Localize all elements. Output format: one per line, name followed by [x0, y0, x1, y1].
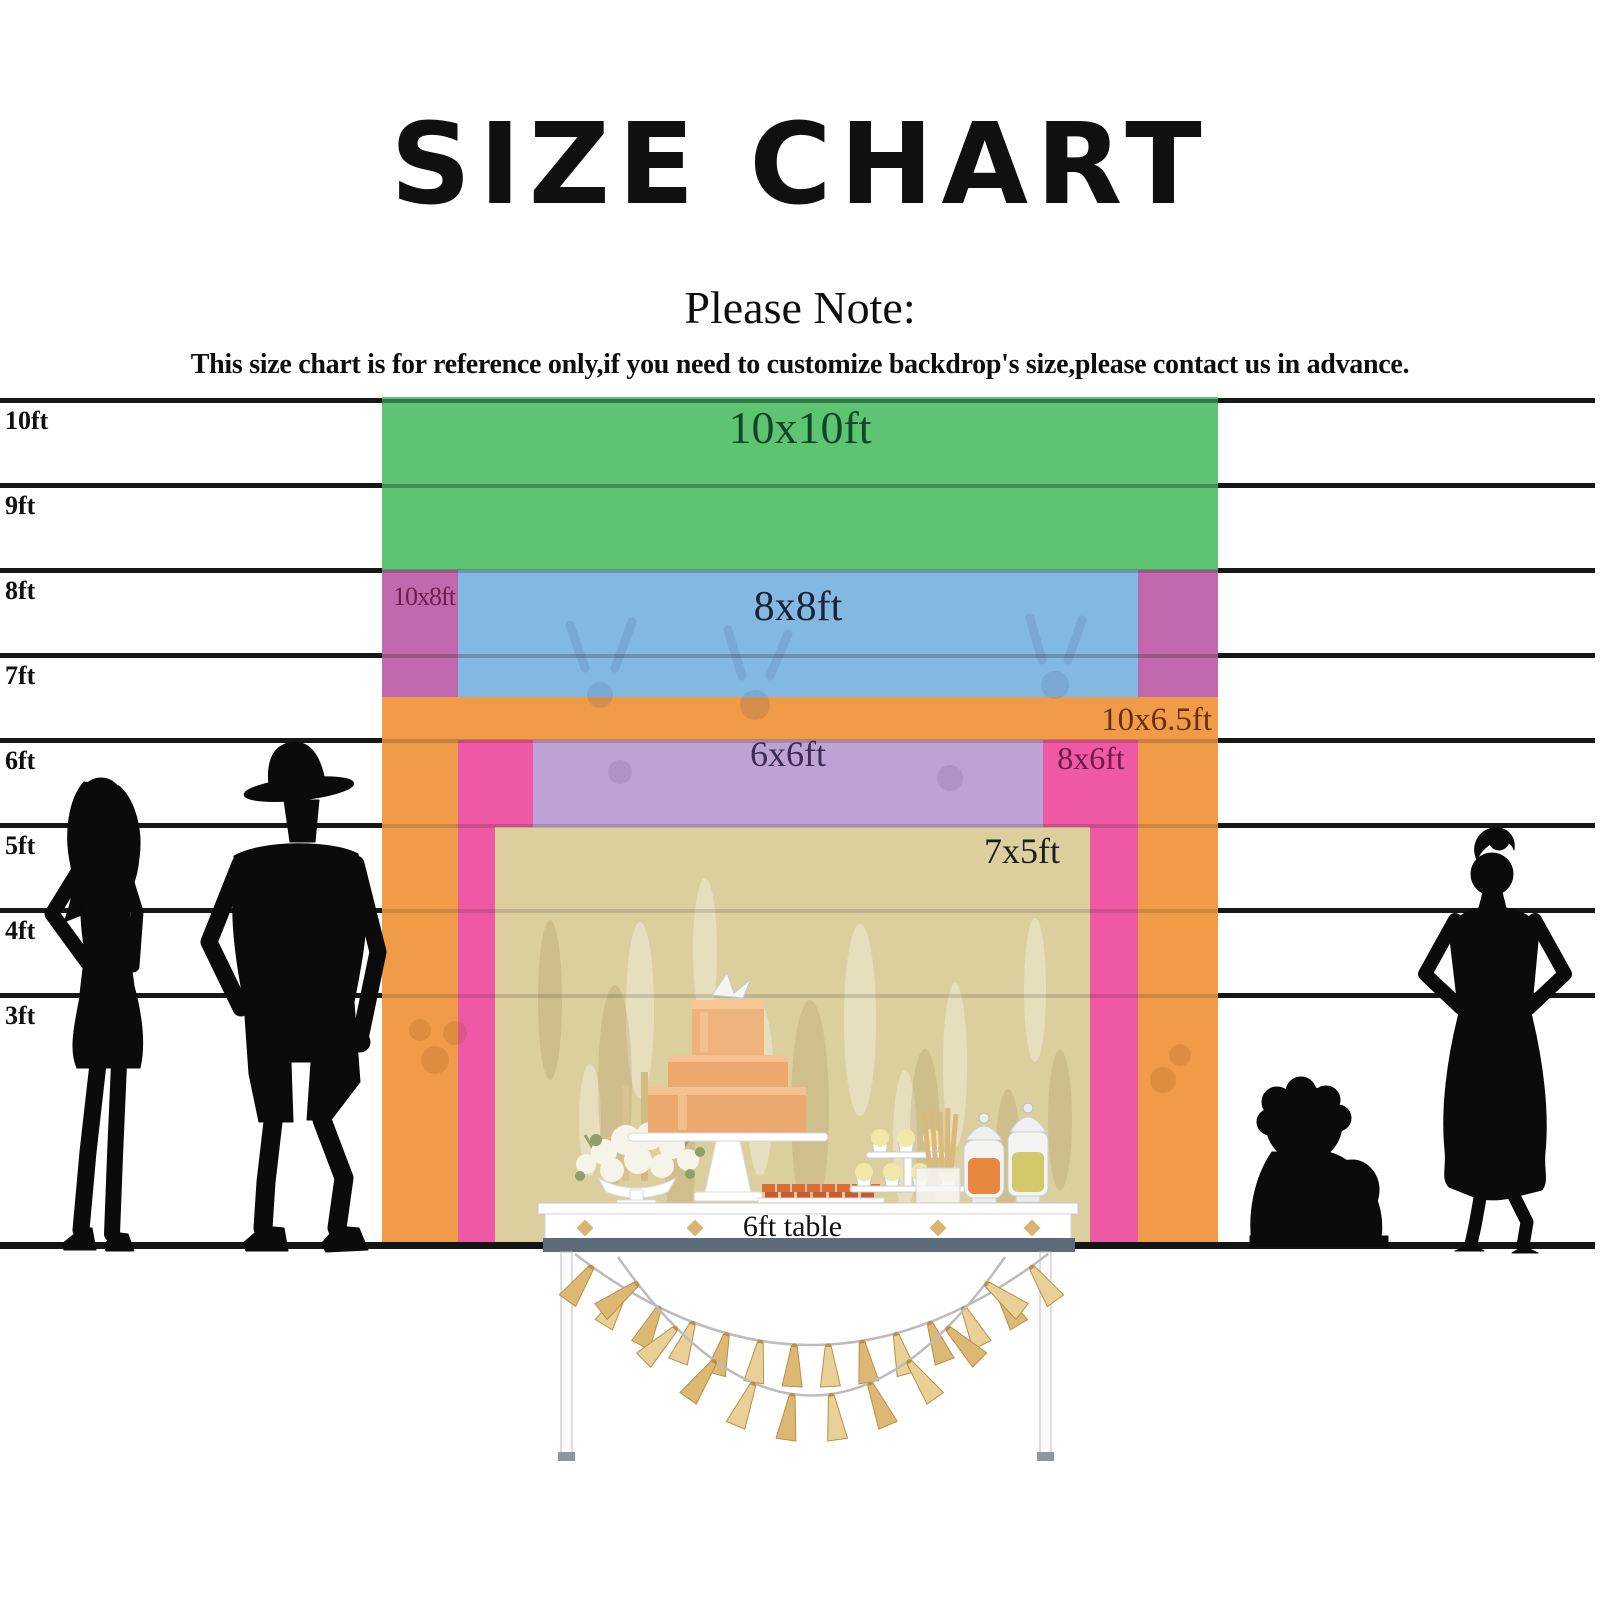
table-leg-left [561, 1252, 572, 1454]
ruler-label-10ft: 10ft [5, 406, 48, 436]
size-label-8x6ft: 8x6ft [1038, 742, 1144, 776]
ruler-label-7ft: 7ft [5, 661, 35, 691]
size-chart-infographic: 10ft 9ft 8ft 7ft 6ft 5ft 4ft 3ft [0, 0, 1600, 1600]
ruler-label-4ft: 4ft [5, 916, 35, 946]
ghost-line-9ft [382, 484, 1218, 488]
silhouette-child-sitting [1250, 1077, 1388, 1247]
ghost-line-7ft [382, 654, 1218, 658]
ghost-line-4ft [382, 909, 1218, 913]
size-label-10x8ft: 10x8ft [383, 583, 465, 610]
note-body: This size chart is for reference only,if… [0, 349, 1600, 381]
ruler-label-9ft: 9ft [5, 491, 35, 521]
page-title: SIZE CHART [0, 104, 1600, 227]
ghost-line-5ft [382, 824, 1218, 828]
size-label-6x6ft: 6x6ft [688, 736, 888, 774]
size-label-10x6.5ft: 10x6.5ft [1010, 703, 1212, 738]
silhouette-woman-left [52, 778, 143, 1251]
ghost-line-3ft [382, 994, 1218, 998]
table-size-label: 6ft table [660, 1211, 925, 1243]
size-label-8x8ft: 8x8ft [458, 585, 1138, 629]
backdrop-rect-7x5ft [495, 827, 1090, 1248]
ruler-label-3ft: 3ft [5, 1001, 35, 1031]
ruler-label-6ft: 6ft [5, 746, 35, 776]
silhouette-woman-right [1425, 828, 1565, 1253]
ghost-line-8ft [382, 569, 1218, 573]
table-leg-right [1040, 1252, 1051, 1454]
tassel-garland-icon [559, 1254, 1063, 1441]
ground-line [0, 1242, 1595, 1249]
ruler-label-5ft: 5ft [5, 831, 35, 861]
size-label-10x10ft: 10x10ft [382, 404, 1218, 452]
size-label-7x5ft: 7x5ft [937, 833, 1107, 871]
note-heading: Please Note: [0, 281, 1600, 334]
ruler-label-8ft: 8ft [5, 576, 35, 606]
